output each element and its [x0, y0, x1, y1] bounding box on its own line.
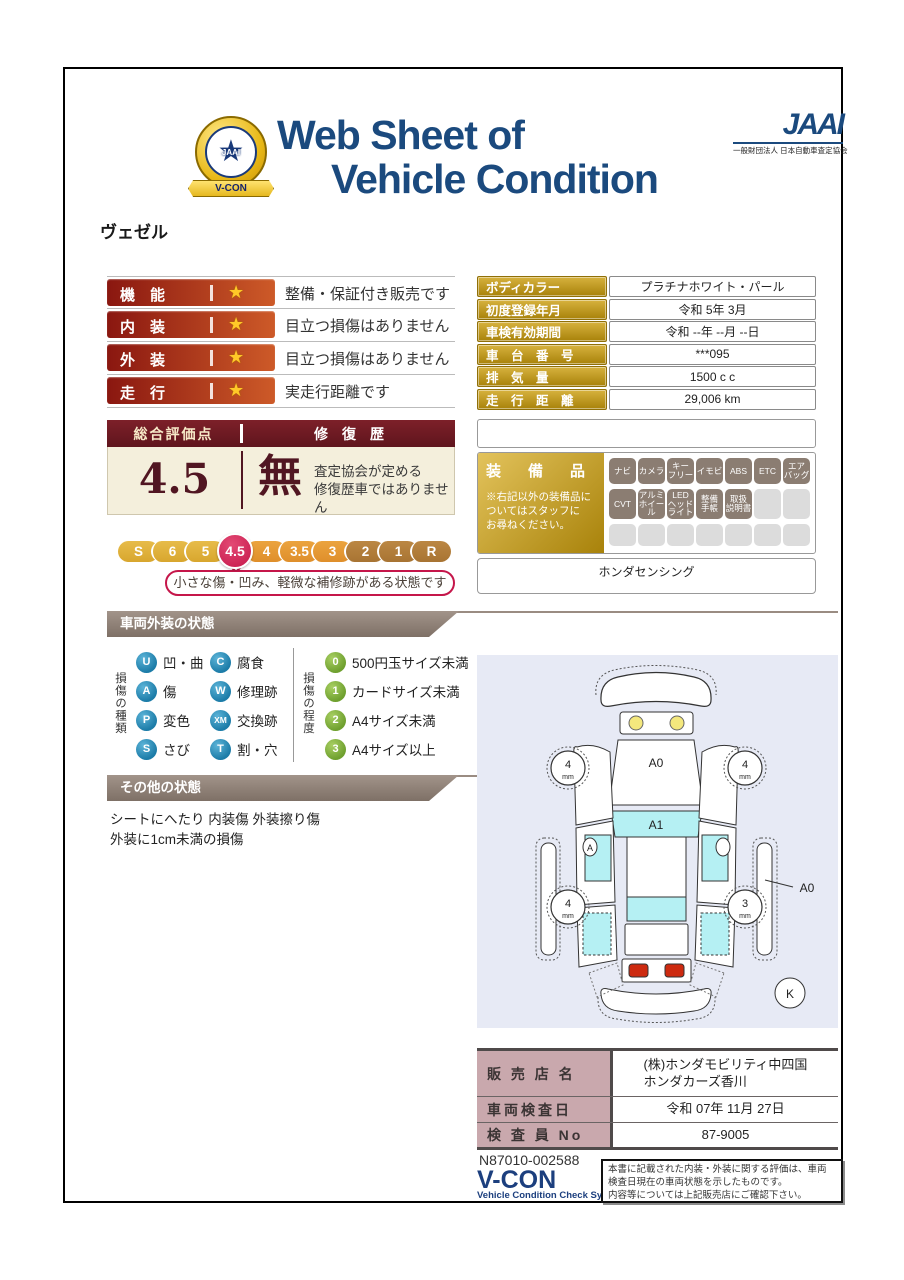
dealer-value: (株)ホンダモビリティ中四国 ホンダカーズ香川 — [610, 1051, 838, 1096]
vcon-ribbon: V-CON — [188, 180, 274, 197]
dealer-label: 車両検査日 — [477, 1097, 610, 1122]
legend-item: T 割・穴 — [210, 735, 278, 763]
body-divider — [241, 451, 243, 509]
corner-marker: K — [786, 987, 794, 1001]
section-banner-exterior: 車両外装の状態 — [107, 611, 459, 637]
legend-label: カードサイズ未満 — [352, 681, 460, 701]
equipment-badge: カメラ — [638, 458, 665, 484]
door-damage-marker: A — [587, 843, 593, 853]
tire-depth-value: 4 — [565, 759, 571, 771]
info-label: 排 気 量 — [477, 366, 607, 387]
legend-label: 500円玉サイズ未満 — [352, 652, 469, 672]
equipment-badge: エア バッグ — [783, 458, 810, 484]
equipment-badge-empty — [667, 524, 694, 546]
equipment-badge-empty — [783, 524, 810, 546]
equipment-badge: LED ヘッド ライト — [667, 489, 694, 519]
rating-label: 外 装 — [120, 349, 165, 370]
mirror-icon — [716, 838, 730, 856]
rating-row: 内 装 ★ 目立つ損傷はありません — [107, 309, 455, 342]
rating-description: 目立つ損傷はありません — [285, 348, 450, 369]
taillight-icon — [629, 964, 648, 977]
star-icon: ★ — [228, 380, 244, 401]
legend-item: 0 500円玉サイズ未満 — [325, 648, 469, 676]
overall-score-value: 4.5 — [108, 455, 241, 503]
bar-divider — [210, 285, 213, 301]
legend-label: 変色 — [163, 710, 190, 730]
damage-type-icon: T — [210, 739, 231, 760]
damage-degree-icon: 2 — [325, 710, 346, 731]
damage-type-icon: A — [136, 681, 157, 702]
damage-type-label: 損傷の種類 — [112, 650, 128, 756]
equipment-badge-empty — [638, 524, 665, 546]
info-label: 初度登録年月 — [477, 299, 607, 320]
equipment-badge: 整備 手帳 — [696, 489, 723, 519]
dealer-table: 販 売 店 名 (株)ホンダモビリティ中四国 ホンダカーズ香川 車両検査日 令和… — [477, 1048, 838, 1150]
legend-divider — [293, 648, 294, 762]
jaai-badge-icon: ★ JAAI — [195, 116, 267, 188]
extra-equipment-box: ホンダセンシング — [477, 558, 816, 594]
equipment-badge: アルミ ホイール — [638, 489, 665, 519]
info-value: 令和 5年 3月 — [609, 299, 816, 320]
rear-bumper — [601, 989, 711, 1014]
overall-score-header: 総合評価点 修 復 歴 — [107, 420, 455, 447]
star-icon: ★ — [228, 282, 244, 303]
legend-item: S さび — [136, 735, 190, 763]
rear-window — [627, 897, 686, 921]
tire-depth-value: 4 — [565, 898, 571, 910]
notes-box-empty — [477, 419, 816, 448]
headlight-icon — [670, 716, 684, 730]
disclaimer-box: 本書に記載された内装・外装に関する評価は、車両 検査日現在の車両状態を示したもの… — [601, 1159, 843, 1203]
legend-item: U 凹・曲 — [136, 648, 204, 676]
grade-description-bubble: 小さな傷・凹み、軽微な補修跡がある状態です — [165, 570, 455, 596]
repair-history-title: 修 復 歴 — [243, 424, 455, 444]
legend-label: 割・穴 — [237, 739, 278, 759]
dealer-label: 販 売 店 名 — [477, 1051, 610, 1096]
equipment-grid: ナビ カメラ キー フリー イモビ ABS ETC エア バッグ CVT アルミ… — [604, 453, 815, 553]
rating-bar-exterior: 外 装 ★ — [107, 344, 275, 371]
legend-label: 凹・曲 — [163, 652, 204, 672]
overall-score-panel: 4.5 無 査定協会が定める 修復歴車ではありません — [107, 447, 455, 515]
info-row: 初度登録年月 令和 5年 3月 — [477, 299, 816, 320]
equipment-title: 装 備 品 — [486, 460, 596, 481]
info-label: 車 台 番 号 — [477, 344, 607, 365]
jaai-association-name: 一般財団法人 日本自動車査定協会 — [733, 142, 843, 156]
car-diagram: A0 A1 A — [477, 655, 838, 1028]
equipment-panel: 装 備 品 ※右記以外の装備品に ついてはスタッフに お尋ねください。 ナビ カ… — [477, 452, 816, 554]
bar-divider — [210, 317, 213, 333]
bar-divider — [210, 383, 213, 399]
equipment-badge-empty — [754, 489, 781, 519]
tire-depth-unit: mm — [739, 774, 751, 781]
legend-label: 腐食 — [237, 652, 264, 672]
rating-description: 実走行距離です — [285, 381, 390, 402]
jaai-logo-text: JAAI — [733, 110, 843, 140]
info-value: 29,006 km — [609, 389, 816, 410]
info-row: 車検有効期間 令和 --年 --月 --日 — [477, 321, 816, 342]
damage-type-icon: P — [136, 710, 157, 731]
equipment-note: ※右記以外の装備品に ついてはスタッフに お尋ねください。 — [486, 490, 596, 533]
info-value: ***095 — [609, 344, 816, 365]
damage-type-icon: S — [136, 739, 157, 760]
rating-label: 走 行 — [120, 382, 165, 403]
equipment-badge-empty — [609, 524, 636, 546]
equipment-badge-empty — [754, 524, 781, 546]
rating-row: 走 行 ★ 実走行距離です — [107, 375, 455, 408]
vehicle-name: ヴェゼル — [100, 218, 168, 243]
info-row: 車 台 番 号 ***095 — [477, 344, 816, 365]
damage-degree-label: 損傷の程度 — [300, 650, 316, 756]
equipment-badge: ナビ — [609, 458, 636, 484]
equipment-badge: ETC — [754, 458, 781, 484]
damage-type-icon: XM — [210, 710, 231, 731]
taillight-icon — [665, 964, 684, 977]
roof-panel — [627, 837, 686, 897]
section-banner-other: その他の状態 — [107, 775, 459, 801]
jaai-logo: JAAI 一般財団法人 日本自動車査定協会 — [733, 110, 843, 156]
trunk-panel — [625, 924, 688, 955]
hood-panel — [609, 740, 703, 805]
legend-item: 1 カードサイズ未満 — [325, 677, 460, 705]
dealer-row: 販 売 店 名 (株)ホンダモビリティ中四国 ホンダカーズ香川 — [477, 1051, 838, 1097]
legend-item: A 傷 — [136, 677, 177, 705]
damage-degree-icon: 3 — [325, 739, 346, 760]
info-value: プラチナホワイト・パール — [609, 276, 816, 297]
equipment-badge: イモビ — [696, 458, 723, 484]
equipment-badge: キー フリー — [667, 458, 694, 484]
legend-item: W 修理跡 — [210, 677, 278, 705]
equipment-badge-empty — [696, 524, 723, 546]
equipment-badge: ABS — [725, 458, 752, 484]
dealer-label: 検 査 員 No — [477, 1123, 610, 1147]
damage-type-icon: U — [136, 652, 157, 673]
legend-item: P 変色 — [136, 706, 190, 734]
rating-description: 目立つ損傷はありません — [285, 315, 450, 336]
tire-depth-unit: mm — [739, 913, 751, 920]
rating-row: 外 装 ★ 目立つ損傷はありません — [107, 342, 455, 375]
legend-label: A4サイズ以上 — [352, 739, 436, 759]
page-title-line2: Vehicle Condition — [331, 159, 658, 200]
car-expanded-view: A0 A1 A — [477, 655, 838, 1028]
legend-item: XM 交換跡 — [210, 706, 278, 734]
repair-history-value: 無 — [258, 455, 302, 499]
info-label: 車検有効期間 — [477, 321, 607, 342]
front-bumper — [601, 673, 711, 707]
rating-bar-mileage: 走 行 ★ — [107, 377, 275, 404]
legend-label: 傷 — [163, 681, 177, 701]
rating-row: 機 能 ★ 整備・保証付き販売です — [107, 276, 455, 309]
repair-history-note: 査定協会が定める 修復歴車ではありません — [314, 463, 454, 518]
rating-bar-interior: 内 装 ★ — [107, 311, 275, 338]
dealer-value: 87-9005 — [610, 1123, 838, 1147]
equipment-badge-empty — [783, 489, 810, 519]
info-row: 走 行 距 離 29,006 km — [477, 389, 816, 410]
dealer-row: 検 査 員 No 87-9005 — [477, 1123, 838, 1147]
tire-depth-unit: mm — [562, 913, 574, 920]
damage-degree-icon: 1 — [325, 681, 346, 702]
bar-divider — [210, 350, 213, 366]
info-row: 排 気 量 1500 c c — [477, 366, 816, 387]
vcon-emblem-badge: ★ JAAI V-CON — [188, 116, 274, 214]
headlight-icon — [629, 716, 643, 730]
emblem-jaai-text: JAAI — [207, 148, 255, 157]
dealer-value: 令和 07年 11月 27日 — [610, 1097, 838, 1122]
info-value: 令和 --年 --月 --日 — [609, 321, 816, 342]
hood-marker: A0 — [649, 756, 664, 770]
grade-segment-selected: 4.5 — [217, 533, 253, 569]
info-label: 走 行 距 離 — [477, 389, 607, 410]
rating-label: 内 装 — [120, 316, 165, 337]
rating-description: 整備・保証付き販売です — [285, 283, 450, 304]
page-title-line1: Web Sheet of — [277, 115, 524, 156]
legend-item: 3 A4サイズ以上 — [325, 735, 436, 763]
legend-label: さび — [163, 739, 190, 759]
star-icon: ★ — [228, 347, 244, 368]
star-icon: ★ — [228, 314, 244, 335]
grade-segment: R — [410, 541, 451, 562]
info-label: ボディカラー — [477, 276, 607, 297]
tire-depth-value: 4 — [742, 759, 748, 771]
rating-label: 機 能 — [120, 284, 165, 305]
equipment-header: 装 備 品 ※右記以外の装備品に ついてはスタッフに お尋ねください。 — [478, 453, 604, 553]
legend-label: 修理跡 — [237, 681, 278, 701]
equipment-badge-empty — [725, 524, 752, 546]
legend-item: C 腐食 — [210, 648, 264, 676]
damage-type-icon: C — [210, 652, 231, 673]
damage-degree-icon: 0 — [325, 652, 346, 673]
grade-scale: S 6 5 4.5 4 3.5 3 2 1 R — [118, 533, 451, 569]
info-row: ボディカラー プラチナホワイト・パール — [477, 276, 816, 297]
equipment-badge: CVT — [609, 489, 636, 519]
dealer-row: 車両検査日 令和 07年 11月 27日 — [477, 1097, 838, 1123]
rear-fender-marker: A0 — [800, 881, 815, 895]
legend-label: 交換跡 — [237, 710, 278, 730]
equipment-badge: 取扱 説明書 — [725, 489, 752, 519]
windshield-marker: A1 — [649, 818, 664, 832]
other-condition-text: シートにへたり 内装傷 外装擦り傷 外装に1cm未満の損傷 — [110, 810, 320, 851]
overall-score-title: 総合評価点 — [107, 424, 240, 444]
damage-type-icon: W — [210, 681, 231, 702]
tire-depth-unit: mm — [562, 774, 574, 781]
legend-label: A4サイズ未満 — [352, 710, 436, 730]
left-rear-window — [583, 913, 611, 955]
rating-bar-function: 機 能 ★ — [107, 279, 275, 306]
info-value: 1500 c c — [609, 366, 816, 387]
legend-item: 2 A4サイズ未満 — [325, 706, 436, 734]
tire-depth-value: 3 — [742, 898, 748, 910]
right-rear-window — [701, 913, 729, 955]
